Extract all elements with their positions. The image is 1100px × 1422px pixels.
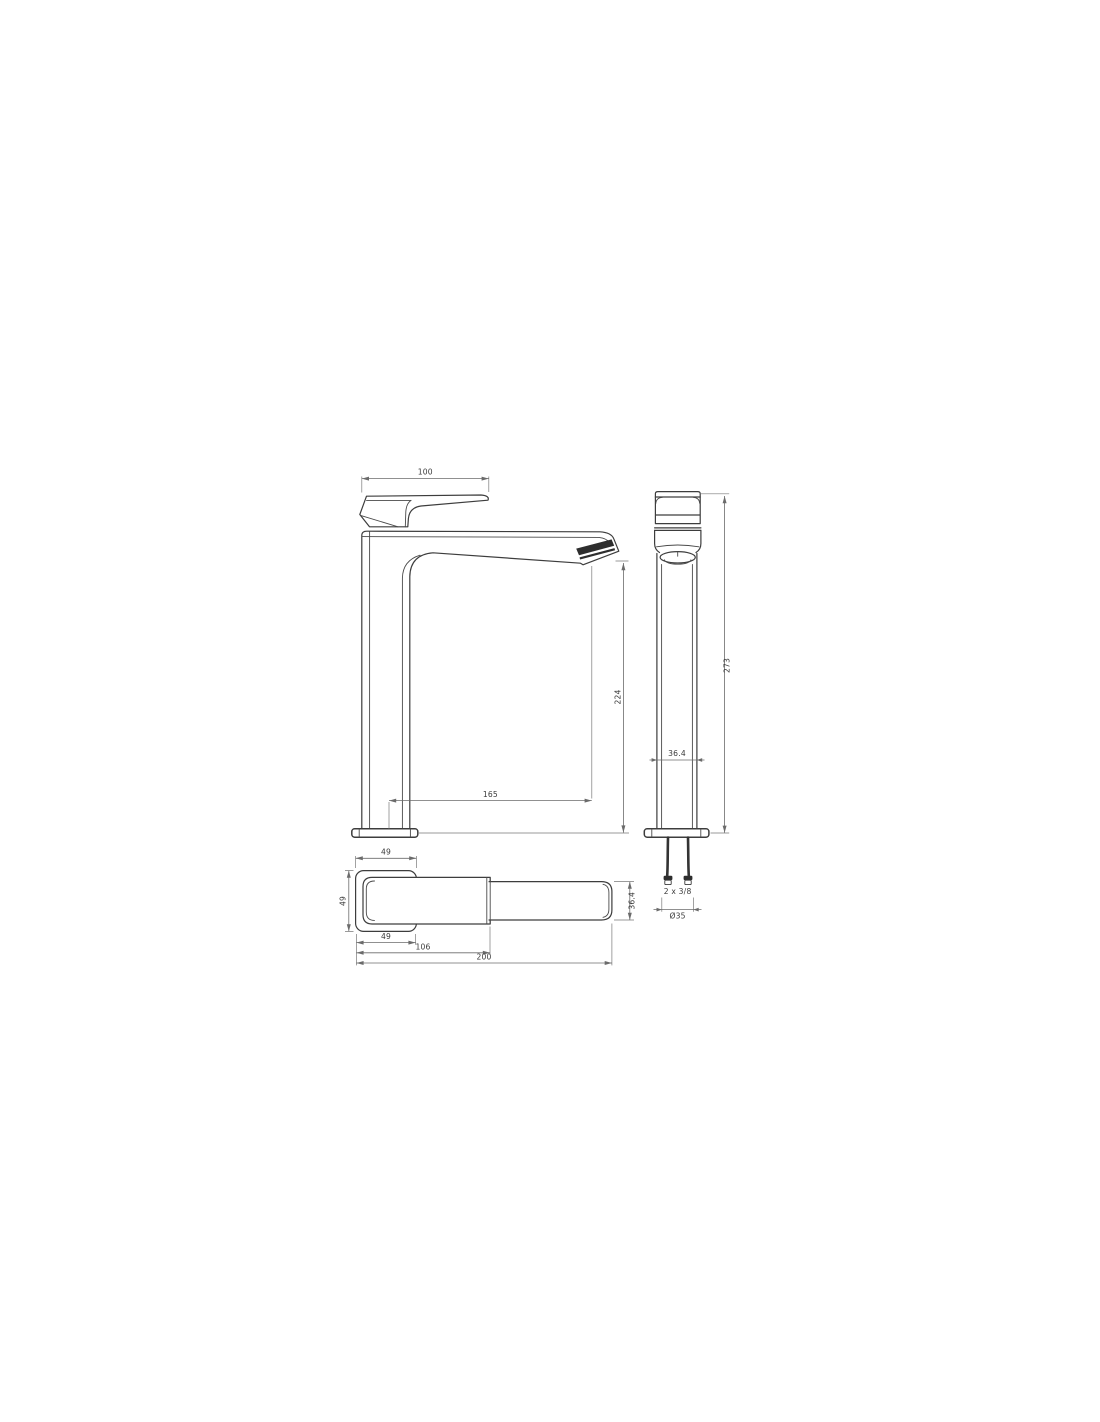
base-plate-side	[352, 829, 418, 837]
dim-label-body-width: 36.4	[668, 749, 686, 758]
front-handle-block	[655, 497, 700, 524]
dim-o35-arrow-right	[693, 908, 698, 912]
base-plate-front	[644, 829, 709, 837]
hose-nut-left	[665, 880, 671, 884]
dim-label-base-depth: 49	[338, 896, 347, 906]
dim-label-base-width-bottom: 49	[381, 932, 391, 941]
dim-label-body-length: 106	[415, 942, 430, 951]
supply-hose-right	[688, 838, 689, 876]
front-column-inner	[662, 565, 693, 829]
dim-label-hose-thread: 2 x 3/8	[664, 887, 692, 896]
dim-364-front-arrow-left	[652, 758, 657, 762]
lever-top-view	[363, 877, 490, 924]
side-view: 100 224 165	[352, 468, 629, 838]
front-view: 273 36.4 2 x 3/8 Ø35	[644, 492, 731, 921]
dim-49top-ext	[356, 856, 417, 868]
handle-outline	[360, 495, 489, 527]
dim-224-ext	[418, 561, 629, 833]
front-handle-top	[655, 492, 700, 497]
front-shoulder-arc	[657, 545, 699, 547]
front-head-sides	[655, 530, 701, 552]
dim-label-mounting-diameter: Ø35	[669, 911, 685, 920]
supply-hose-left	[667, 838, 668, 876]
spout-top-view	[489, 882, 612, 920]
dim-label-outlet-height: 224	[614, 689, 623, 704]
column-inner-right	[402, 555, 420, 829]
spout-top-edge	[362, 537, 610, 543]
hose-nut-right	[685, 880, 691, 884]
top-view: 49 49 49 106 200 36.4	[338, 848, 636, 966]
front-column-outer	[657, 554, 697, 829]
dim-364-front-arrow-right	[697, 758, 702, 762]
dim-label-total-height: 273	[722, 658, 731, 673]
dim-label-spout-width: 36.4	[628, 892, 637, 910]
hose-nut-left-cap	[664, 876, 673, 880]
dim-label-base-width: 49	[381, 848, 391, 857]
hose-nut-right-cap	[684, 876, 693, 880]
dim-label-total-length: 200	[476, 953, 491, 962]
dim-o35-arrow-left	[657, 908, 662, 912]
dim-label-handle-length: 100	[418, 468, 433, 477]
aerator-band	[576, 539, 614, 555]
front-body-top	[655, 528, 701, 531]
front-handle-corner-arcs	[656, 497, 700, 503]
body-outline	[362, 531, 619, 829]
dim-label-spout-reach: 165	[483, 790, 498, 799]
technical-drawing-page: 100 224 165	[0, 0, 1100, 1422]
faucet-dimension-drawing: 100 224 165	[0, 0, 1100, 1422]
